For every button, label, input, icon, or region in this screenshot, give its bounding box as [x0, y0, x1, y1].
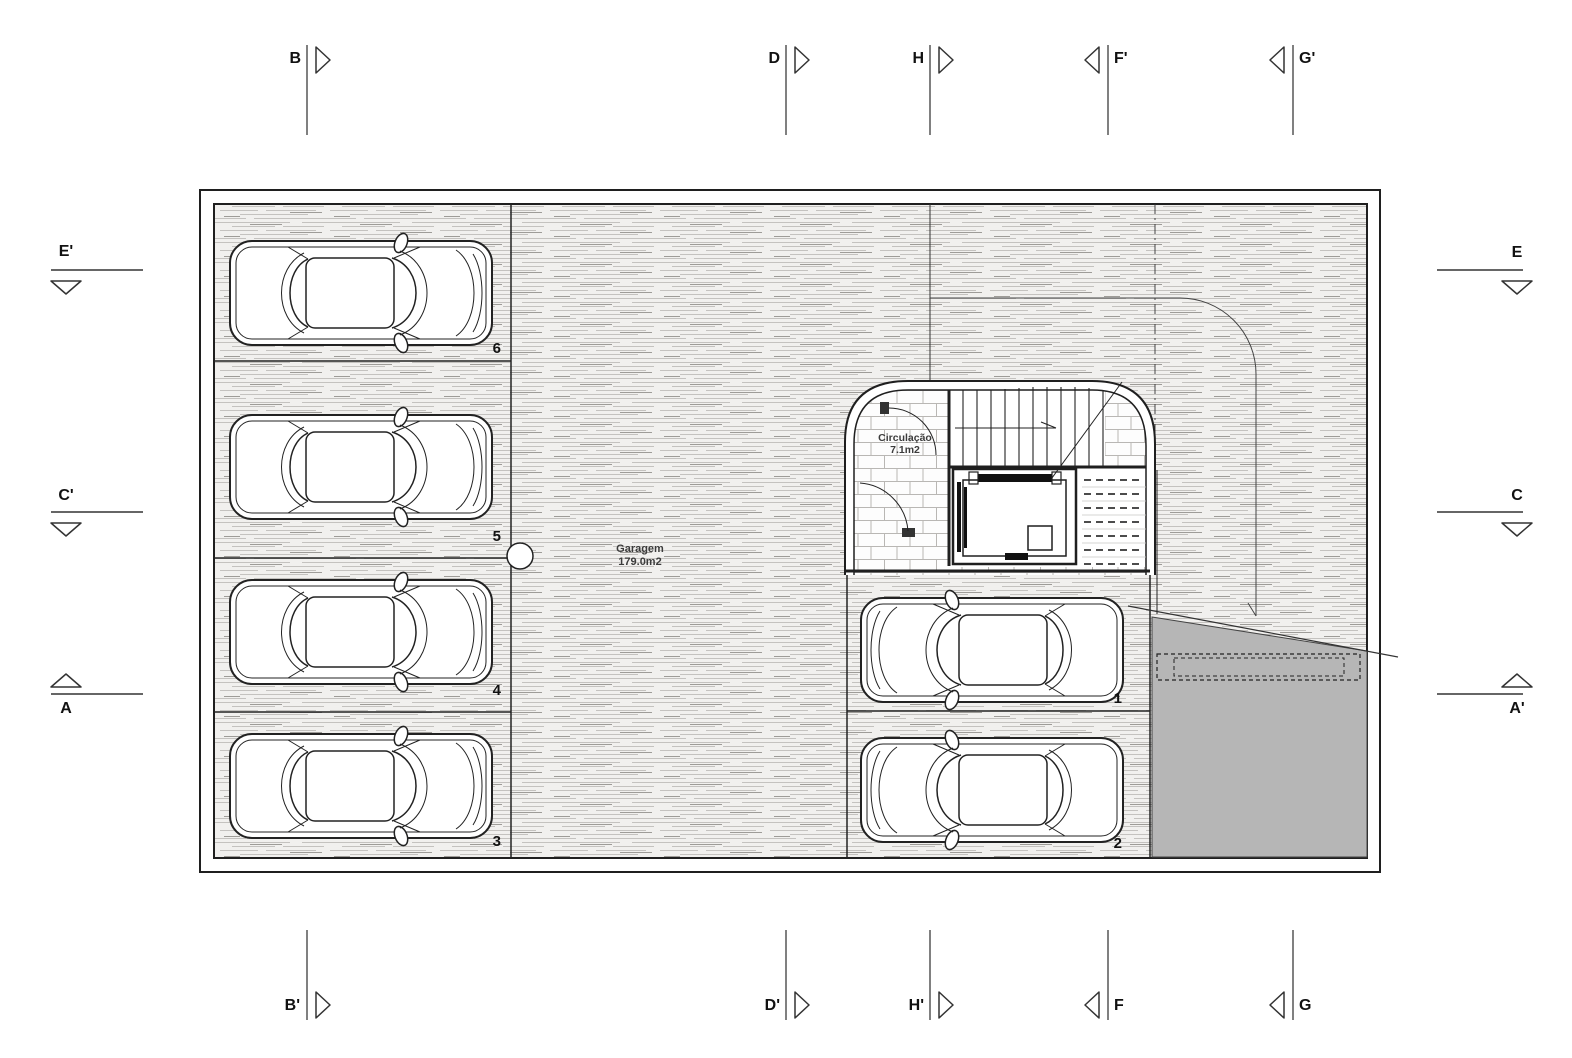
section-label-h-prime: H'	[880, 997, 924, 1015]
section-label-b: B	[269, 50, 301, 68]
garage-room-label: Garagem 179.0m2	[570, 543, 710, 569]
structural-column	[507, 543, 533, 569]
elevator-door-track	[978, 474, 1052, 482]
stair-core	[845, 381, 1155, 575]
plan-drawing	[0, 0, 1572, 1058]
section-label-d: D	[748, 50, 780, 68]
section-label-g-prime: G'	[1299, 50, 1315, 68]
elevator-guide-rail	[957, 482, 961, 552]
section-label-d-prime: D'	[736, 997, 780, 1015]
section-label-b-prime: B'	[256, 997, 300, 1015]
car-spot-3	[230, 724, 492, 847]
car-spot-6	[230, 231, 492, 354]
section-label-f-prime: F'	[1114, 50, 1128, 68]
section-label-g: G	[1299, 997, 1311, 1015]
garage-room-area: 179.0m2	[570, 556, 710, 569]
elevator	[953, 469, 1076, 564]
circulation-room-label: Circulação 7.1m2	[845, 432, 965, 456]
section-label-e: E	[1497, 244, 1537, 262]
section-label-c-prime: C'	[46, 487, 86, 505]
section-label-a-prime: A'	[1497, 700, 1537, 718]
floor-plan-canvas: B D H F' G' B' D' H' F G E' C' A E C A' …	[0, 0, 1572, 1058]
section-label-f: F	[1114, 997, 1124, 1015]
parking-spot-number-4: 4	[471, 682, 501, 699]
circulation-room-area: 7.1m2	[845, 444, 965, 456]
section-label-a: A	[46, 700, 86, 718]
section-label-e-prime: E'	[46, 243, 86, 261]
elevator-counterweight	[1028, 526, 1052, 550]
car-spot-1	[861, 588, 1123, 711]
parking-spot-number-6: 6	[471, 340, 501, 357]
section-label-c: C	[1497, 487, 1537, 505]
parking-spot-number-1: 1	[1092, 690, 1122, 707]
car-spot-5	[230, 405, 492, 528]
parking-spot-number-3: 3	[471, 833, 501, 850]
car-spot-2	[861, 728, 1123, 851]
circulation-room-name: Circulação	[845, 432, 965, 444]
parking-spot-number-2: 2	[1092, 835, 1122, 852]
car-spot-4	[230, 570, 492, 693]
parking-spot-number-5: 5	[471, 528, 501, 545]
garage-room-name: Garagem	[570, 543, 710, 556]
section-label-h: H	[892, 50, 924, 68]
